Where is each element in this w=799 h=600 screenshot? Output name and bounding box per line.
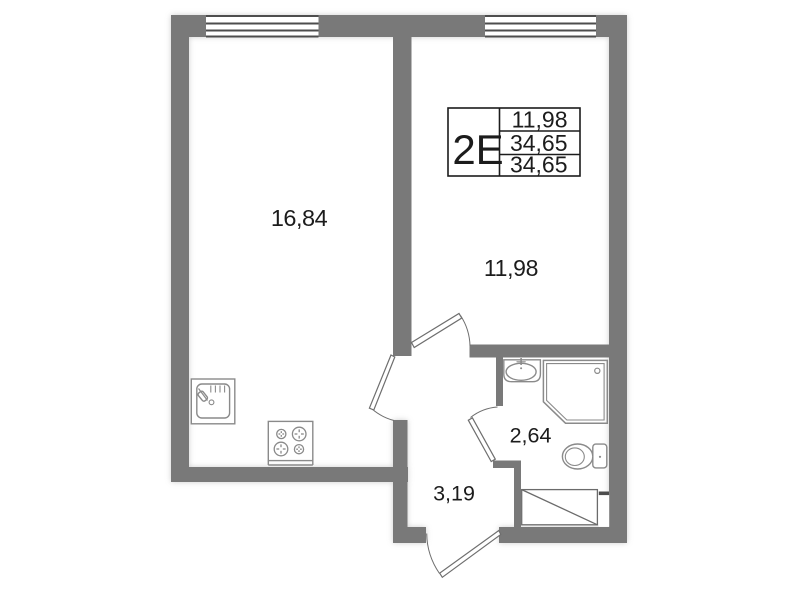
svg-text:11,98: 11,98 [484, 255, 538, 281]
svg-text:3,19: 3,19 [433, 482, 475, 506]
svg-text:2,64: 2,64 [510, 424, 552, 448]
svg-text:16,84: 16,84 [271, 205, 328, 231]
svg-text:34,65: 34,65 [510, 152, 568, 178]
svg-text:11,98: 11,98 [512, 107, 568, 133]
svg-text:2E: 2E [452, 126, 503, 173]
